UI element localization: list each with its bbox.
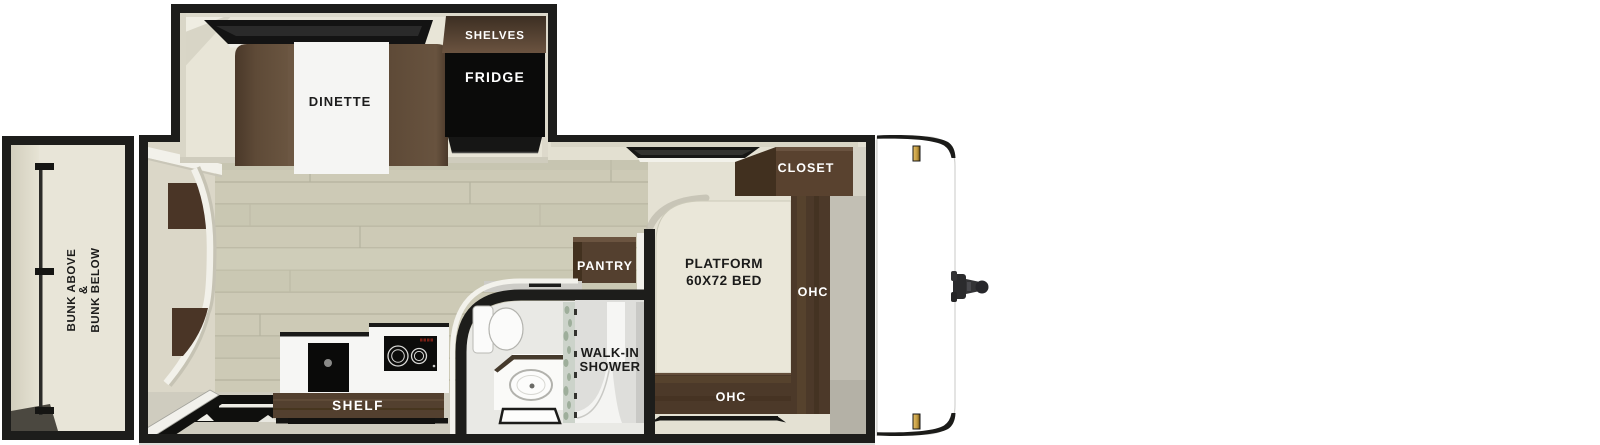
svg-text:PLATFORM: PLATFORM — [685, 256, 763, 271]
svg-text:SHOWER: SHOWER — [580, 359, 641, 374]
svg-text:SHELVES: SHELVES — [465, 30, 525, 42]
svg-text:CLOSET: CLOSET — [778, 161, 835, 175]
svg-text:PANTRY: PANTRY — [577, 259, 633, 273]
svg-text:OHC: OHC — [798, 285, 829, 299]
svg-text:WALK-IN: WALK-IN — [581, 345, 639, 360]
svg-text:60X72 BED: 60X72 BED — [686, 273, 762, 288]
svg-text:&: & — [78, 286, 90, 294]
svg-text:FRIDGE: FRIDGE — [465, 69, 525, 85]
svg-text:BUNK ABOVE: BUNK ABOVE — [66, 249, 78, 332]
svg-text:SHELF: SHELF — [332, 398, 384, 413]
svg-text:BUNK BELOW: BUNK BELOW — [90, 247, 102, 332]
svg-text:DINETTE: DINETTE — [309, 94, 372, 109]
svg-text:OHC: OHC — [716, 390, 747, 404]
